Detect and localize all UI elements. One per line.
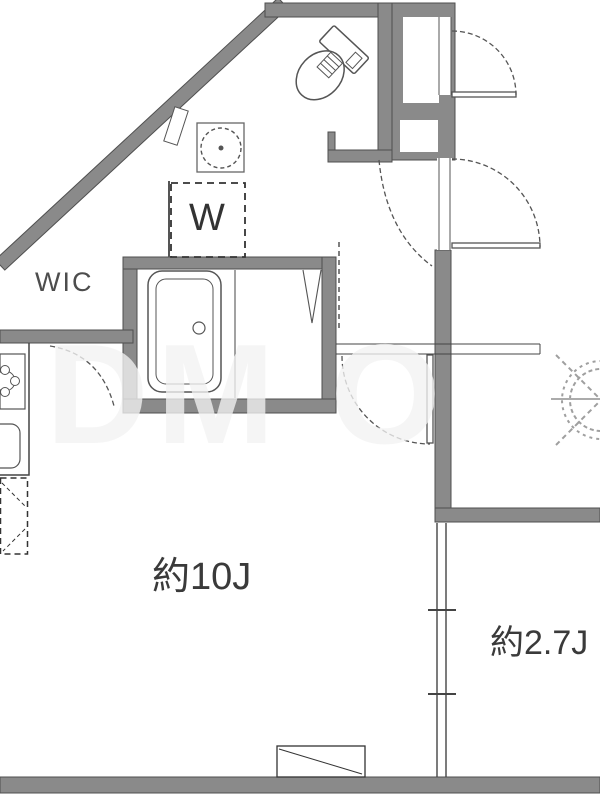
washbasin-drain [219, 146, 224, 151]
service-room-label: 約2.7J [490, 626, 588, 660]
floorplan-page: DM O WIC W 約10J 約2.7J [0, 0, 600, 800]
threshold-lines [235, 270, 540, 398]
toilet-room-wall [378, 3, 392, 150]
wic-door-swing [50, 346, 114, 406]
bottom-wall [0, 777, 600, 793]
kitchen-sink [0, 424, 20, 468]
wic-bottom-wall [0, 330, 133, 343]
closet-interior [403, 17, 439, 103]
bathtub-drain [193, 322, 205, 334]
main-room-label: 約10J [152, 558, 251, 596]
closet-doorway [439, 17, 451, 95]
walls [0, 0, 600, 793]
hall-door-swing [379, 160, 432, 266]
floorplan-drawing [0, 0, 600, 800]
bathtub [148, 271, 221, 392]
bathroom-wall-top [123, 257, 336, 269]
service-room-top-wall [435, 508, 600, 522]
watermark-emblem-icon [551, 355, 600, 445]
niche-interior [400, 120, 438, 152]
hall-wall-stub [328, 132, 335, 150]
bathroom-wall-bottom [123, 399, 336, 413]
room-partition [428, 523, 456, 777]
east-room-door [452, 159, 540, 248]
wic-room-label: WIC [35, 269, 93, 296]
kitchen [0, 343, 29, 475]
hall-wall [328, 150, 392, 162]
right-vertical-wall [435, 250, 451, 522]
entrance-step [277, 746, 365, 777]
washer-label: W [189, 199, 225, 237]
washbasin [197, 123, 244, 172]
closet-door [452, 31, 516, 97]
bathroom-wall-right [322, 257, 336, 413]
refrigerator-space [1, 478, 28, 554]
toilet [284, 25, 369, 111]
washroom-door [342, 355, 433, 444]
